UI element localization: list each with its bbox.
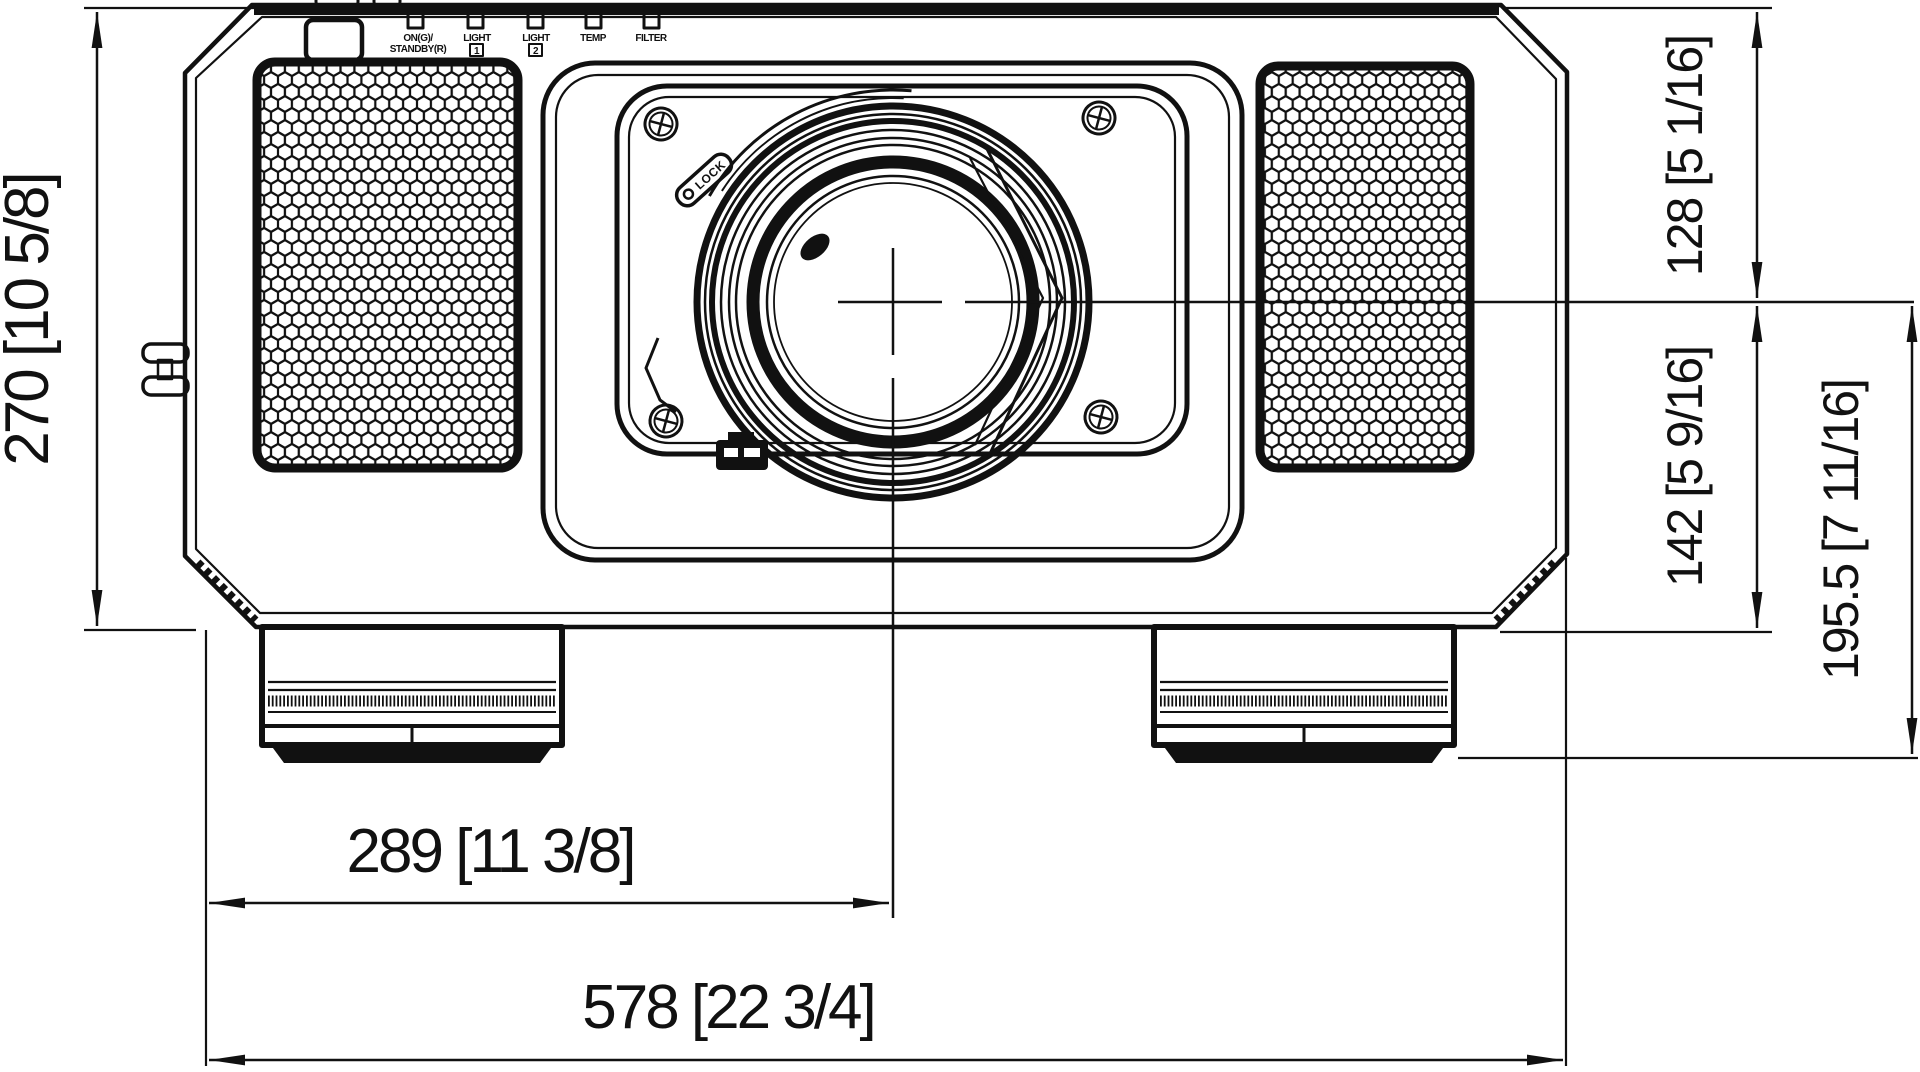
foot-base-pad xyxy=(270,744,554,763)
ir-receiver-window xyxy=(306,20,362,60)
screw-icon xyxy=(646,401,685,440)
top-bump-left xyxy=(316,0,358,5)
dim-center-to-bottom: 142 [5 9/16] xyxy=(1657,347,1713,587)
indicator-panel: ON(G)/ STANDBY(R) LIGHT 1 LIGHT 2 TEMP F… xyxy=(390,12,668,57)
power-indicator-label-line1: ON(G)/ xyxy=(403,33,433,44)
light1-indicator-label: LIGHT xyxy=(463,33,491,44)
temp-indicator-label: TEMP xyxy=(580,33,607,44)
light2-indicator-label: LIGHT xyxy=(522,33,550,44)
screw-icon xyxy=(641,104,680,143)
projection-lens xyxy=(646,90,1089,498)
dim-top-to-center: 128 [5 1/16] xyxy=(1657,36,1713,276)
side-bracket xyxy=(143,344,188,395)
drawing-canvas: ON(G)/ STANDBY(R) LIGHT 1 LIGHT 2 TEMP F… xyxy=(0,0,1920,1072)
dim-left-to-center: 289 [11 3/8] xyxy=(347,817,634,886)
top-bump-right xyxy=(374,0,400,5)
left-foot xyxy=(262,627,562,763)
screw-icon xyxy=(1079,98,1118,137)
filter-indicator-label: FILTER xyxy=(635,33,668,44)
fin-texture-left xyxy=(198,562,256,620)
lock-pin-icon xyxy=(682,188,695,201)
lens-connector xyxy=(716,432,768,470)
right-foot xyxy=(1154,627,1454,763)
screw-icon xyxy=(1081,397,1120,436)
lever-knob xyxy=(796,228,835,265)
lens-mount-plate-inner-line xyxy=(629,97,1175,443)
right-exhaust-grille xyxy=(1260,66,1470,468)
projector-dimension-drawing: ON(G)/ STANDBY(R) LIGHT 1 LIGHT 2 TEMP F… xyxy=(0,0,1920,1072)
left-intake-grille xyxy=(257,62,518,468)
power-indicator-label-line2: STANDBY(R) xyxy=(390,44,447,55)
fin-texture-right xyxy=(1496,562,1554,620)
mount-bracket-line xyxy=(646,338,676,412)
dim-body-width: 578 [22 3/4] xyxy=(582,973,874,1042)
dim-body-height: 270 [10 5/8] xyxy=(0,174,62,466)
foot-base-pad xyxy=(1162,744,1446,763)
dim-center-to-foot: 195.5 [7 11/16] xyxy=(1813,380,1869,680)
